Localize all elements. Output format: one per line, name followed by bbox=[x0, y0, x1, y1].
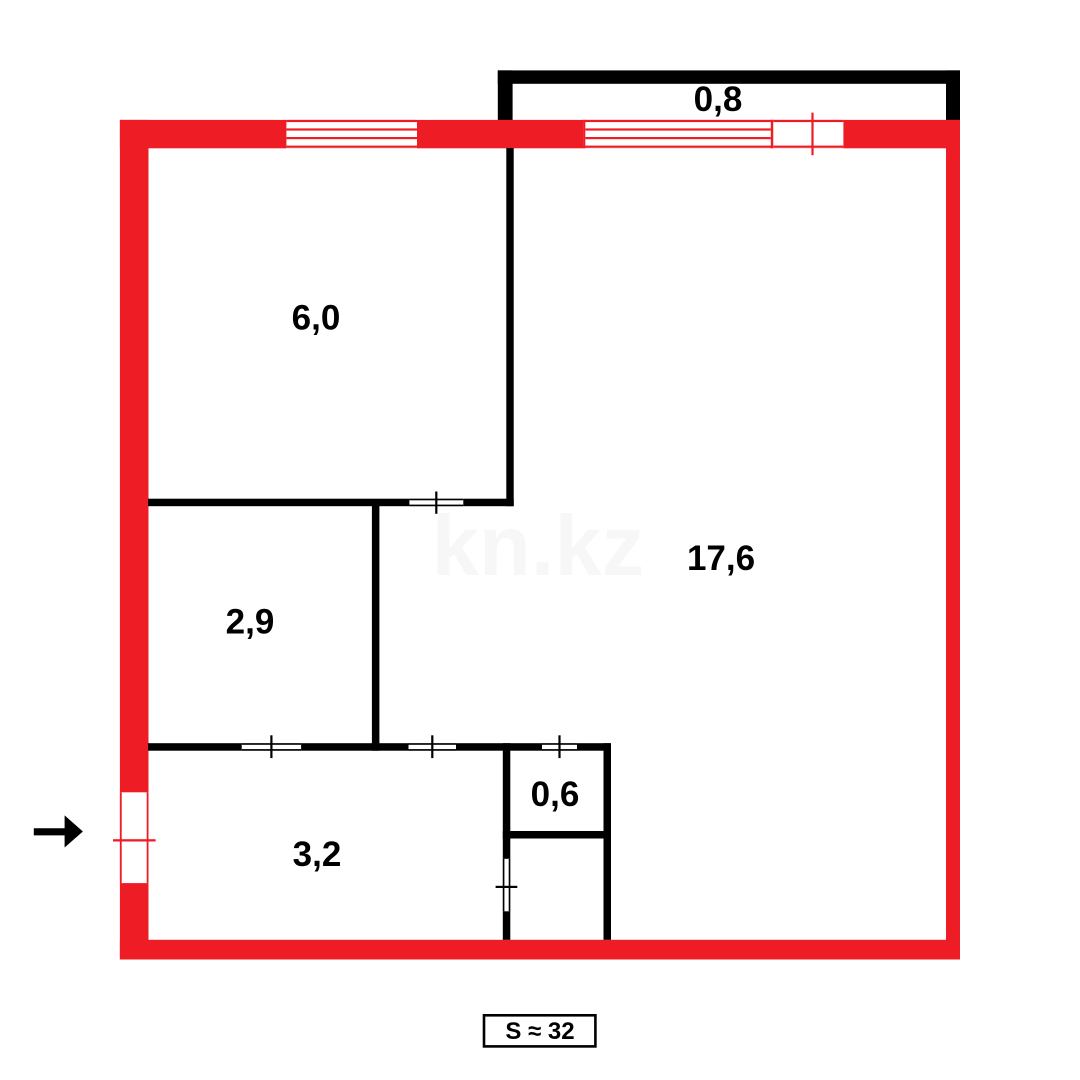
svg-text:6,0: 6,0 bbox=[292, 299, 341, 338]
svg-text:2,9: 2,9 bbox=[226, 603, 275, 642]
svg-text:3,2: 3,2 bbox=[293, 835, 342, 874]
svg-text:0,8: 0,8 bbox=[694, 80, 743, 119]
svg-text:kn.kz: kn.kz bbox=[432, 499, 645, 594]
svg-text:17,6: 17,6 bbox=[687, 539, 755, 578]
svg-text:0,6: 0,6 bbox=[531, 775, 580, 814]
svg-text:S ≈ 32: S ≈ 32 bbox=[505, 1018, 574, 1045]
